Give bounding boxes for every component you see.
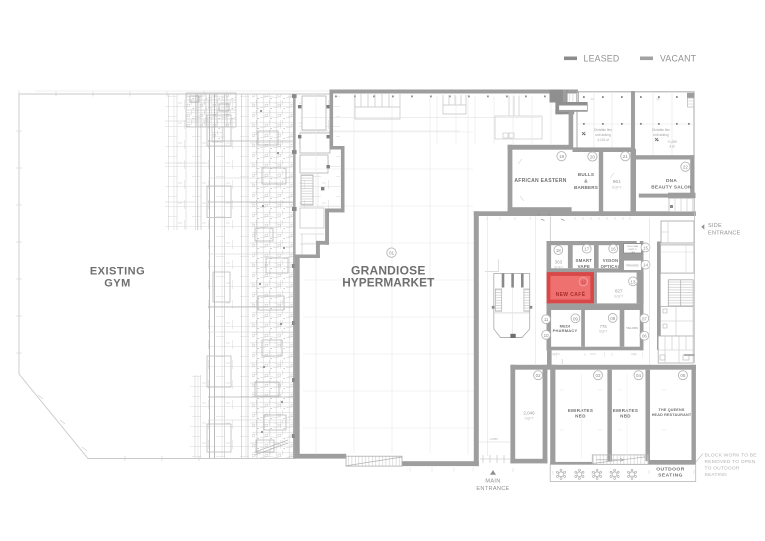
svg-text:ENTRANCE: ENTRANCE	[476, 486, 509, 492]
svg-text:BULLS: BULLS	[578, 172, 594, 177]
svg-text:Divisible flex: Divisible flex	[594, 128, 612, 132]
svg-text:01: 01	[389, 251, 395, 256]
svg-text:20: 20	[590, 155, 596, 160]
svg-text:04: 04	[636, 373, 642, 378]
svg-text:3 sf: 3 sf	[669, 145, 674, 149]
svg-text:SQFT: SQFT	[599, 330, 608, 334]
svg-text:&: &	[584, 179, 588, 184]
svg-text:Divisible flex: Divisible flex	[652, 128, 670, 132]
svg-text:REMOVED TO OPEN: REMOVED TO OPEN	[705, 459, 756, 465]
svg-text:2,046: 2,046	[523, 411, 535, 416]
svg-text:827: 827	[615, 289, 623, 294]
svg-text:08: 08	[610, 316, 615, 321]
svg-text:14: 14	[590, 97, 594, 101]
svg-text:18: 18	[556, 248, 561, 253]
svg-text:SQFT: SQFT	[614, 294, 623, 298]
svg-text:BLOCK WORK TO BE: BLOCK WORK TO BE	[705, 453, 758, 459]
svg-text:16: 16	[611, 247, 616, 252]
svg-text:02: 02	[536, 373, 542, 378]
svg-text:03: 03	[595, 373, 601, 378]
svg-text:PRAYERS: PRAYERS	[626, 264, 638, 268]
svg-text:10: 10	[544, 333, 549, 338]
svg-text:LEASED: LEASED	[584, 54, 620, 64]
svg-text:OPTICAL: OPTICAL	[601, 264, 621, 269]
svg-text:GYM: GYM	[104, 278, 131, 290]
svg-text:11: 11	[544, 317, 549, 322]
svg-text:BARBERS: BARBERS	[574, 185, 598, 190]
svg-text:13: 13	[631, 279, 636, 284]
svg-text:SEATING: SEATING	[658, 472, 683, 478]
svg-text:VACANT: VACANT	[660, 54, 697, 64]
svg-text:363: 363	[555, 260, 563, 265]
svg-text:4,131 sf: 4,131 sf	[597, 138, 608, 142]
svg-text:05: 05	[680, 373, 686, 378]
svg-text:EXISTING: EXISTING	[90, 266, 145, 278]
svg-text:VISION: VISION	[603, 258, 618, 263]
svg-text:06: 06	[642, 334, 647, 339]
svg-text:ENTRANCE: ENTRANCE	[708, 230, 741, 236]
svg-text:15: 15	[643, 245, 648, 250]
svg-text:SMART: SMART	[575, 258, 592, 263]
svg-text:NEW CAFÉ: NEW CAFÉ	[556, 290, 586, 298]
svg-text:+1,009: +1,009	[667, 140, 677, 144]
svg-text:17: 17	[584, 247, 589, 252]
svg-text:CAR: CAR	[630, 251, 635, 254]
svg-text:07: 07	[642, 316, 647, 321]
svg-text:HYPERMARKET: HYPERMARKET	[342, 276, 435, 290]
svg-text:AFRICAN EASTERN: AFRICAN EASTERN	[514, 178, 566, 184]
svg-text:HUNT &: HUNT &	[628, 249, 637, 251]
svg-text:NBD: NBD	[575, 414, 586, 419]
svg-text:776: 776	[600, 324, 608, 329]
svg-text:SQFT: SQFT	[612, 186, 623, 190]
svg-text:TO OUTDOOR: TO OUTDOOR	[705, 466, 740, 472]
svg-text:22: 22	[683, 165, 689, 170]
svg-text:DNA: DNA	[666, 178, 677, 183]
svg-text:PHARMACY: PHARMACY	[553, 328, 578, 333]
svg-text:unit asking: unit asking	[653, 133, 668, 137]
svg-text:SQFT: SQFT	[524, 417, 533, 421]
svg-text:HEAD RESTAURANT: HEAD RESTAURANT	[652, 413, 692, 417]
svg-text:21: 21	[623, 154, 629, 159]
svg-text:VAPE: VAPE	[578, 264, 590, 269]
svg-text:NBD: NBD	[620, 414, 631, 419]
svg-text:CELLULAR: CELLULAR	[627, 245, 639, 248]
svg-text:14: 14	[643, 263, 648, 268]
svg-text:EMIRATES: EMIRATES	[568, 408, 593, 413]
svg-text:09: 09	[573, 316, 578, 321]
svg-text:19: 19	[559, 154, 565, 159]
svg-text:TAILORS: TAILORS	[626, 326, 638, 330]
svg-text:MAIN: MAIN	[485, 479, 500, 485]
svg-text:961: 961	[613, 179, 621, 185]
svg-text:BEAUTY SALON: BEAUTY SALON	[651, 185, 692, 190]
svg-text:LOBBY: LOBBY	[490, 437, 499, 441]
svg-text:12: 12	[581, 280, 586, 285]
svg-text:SQFT: SQFT	[554, 265, 563, 269]
svg-text:OUTDOOR: OUTDOOR	[656, 467, 685, 473]
svg-text:THE QUEENS: THE QUEENS	[659, 408, 685, 412]
svg-text:SIDE: SIDE	[708, 223, 722, 229]
svg-text:SEATING: SEATING	[705, 472, 728, 478]
svg-text:unit asking: unit asking	[595, 133, 610, 137]
svg-text:EMIRATES: EMIRATES	[613, 408, 638, 413]
